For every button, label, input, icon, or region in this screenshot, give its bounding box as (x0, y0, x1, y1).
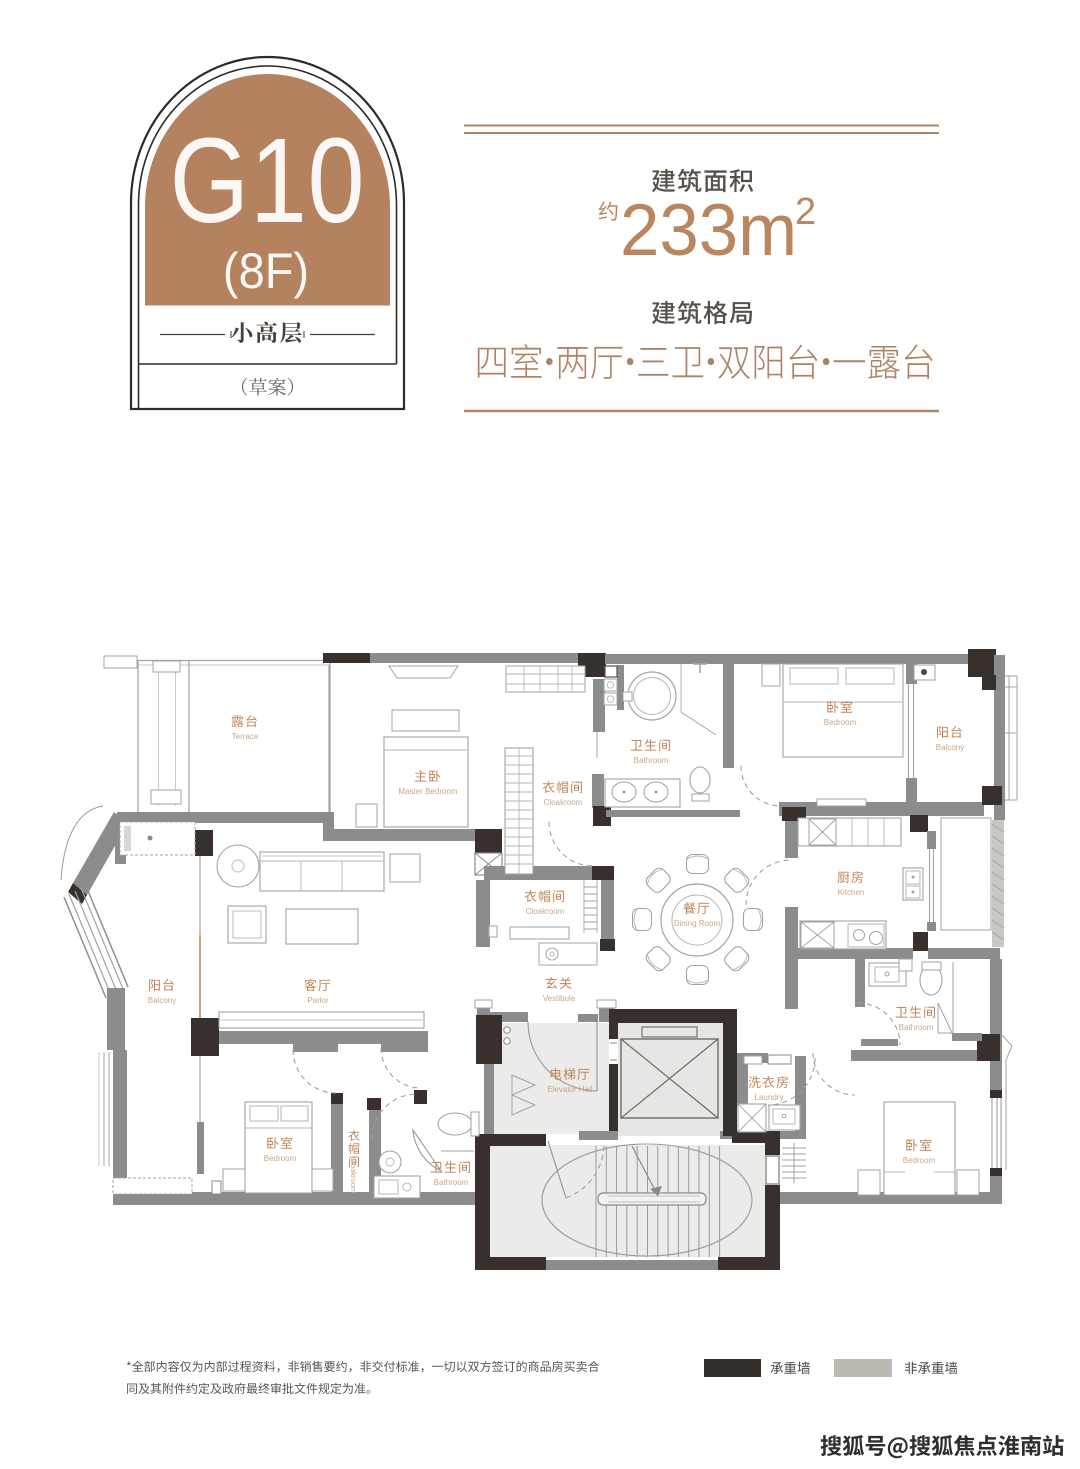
svg-text:Dining Room: Dining Room (674, 919, 721, 928)
svg-text:Bedroom: Bedroom (903, 1156, 936, 1165)
svg-text:Elevator Hall: Elevator Hall (547, 1085, 593, 1094)
svg-text:Bedroom: Bedroom (264, 1154, 297, 1163)
svg-text:Bedroom: Bedroom (824, 718, 857, 727)
svg-text:Bathroom: Bathroom (899, 1023, 934, 1032)
svg-text:233m: 233m (620, 190, 797, 271)
svg-text:Kitchen: Kitchen (838, 888, 865, 897)
svg-text:Bathroom: Bathroom (634, 756, 669, 765)
svg-text:Parlor: Parlor (307, 996, 329, 1005)
svg-text:Vestibule: Vestibule (543, 994, 576, 1003)
svg-text:Balcony: Balcony (148, 996, 176, 1005)
svg-text:Terrace: Terrace (232, 732, 259, 741)
svg-text:2: 2 (795, 191, 816, 233)
svg-text:(8F): (8F) (223, 244, 309, 300)
svg-text:Bathroom: Bathroom (434, 1178, 469, 1187)
svg-text:Cloakroom: Cloakroom (349, 1157, 358, 1193)
svg-text:Cloakroom: Cloakroom (544, 798, 583, 807)
svg-text:G10: G10 (170, 113, 366, 248)
svg-text:Cloakroom: Cloakroom (526, 907, 565, 916)
svg-text:Balcony: Balcony (936, 743, 964, 752)
svg-text:Laundry: Laundry (755, 1093, 784, 1102)
svg-text:Master Bedroom: Master Bedroom (398, 787, 457, 796)
